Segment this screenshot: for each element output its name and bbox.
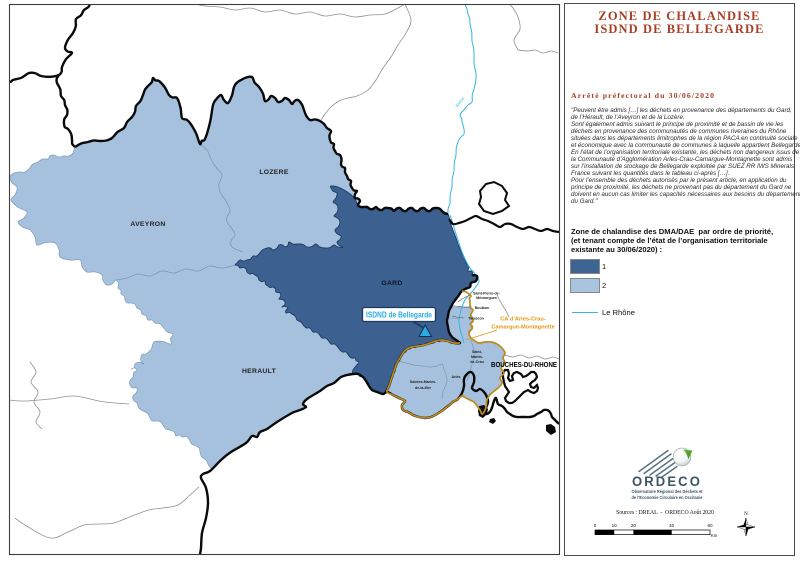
svg-text:Boulbon: Boulbon [475, 306, 490, 310]
svg-text:CA d’Arles-Crau-: CA d’Arles-Crau- [500, 317, 546, 323]
svg-text:Saintes-Maries-: Saintes-Maries- [410, 380, 437, 384]
svg-text:AVEYRON: AVEYRON [130, 221, 165, 228]
svg-text:N: N [744, 511, 748, 517]
svg-text:Km: Km [711, 533, 718, 538]
svg-text:de-Crau: de-Crau [470, 360, 484, 364]
svg-text:HERAULT: HERAULT [242, 368, 277, 375]
svg-text:GARD: GARD [381, 280, 402, 287]
svg-text:de l’Economie Circulaire en Oc: de l’Economie Circulaire en Occitanie [632, 495, 704, 500]
svg-text:Saint-: Saint- [472, 350, 483, 354]
svg-text:Martin-: Martin- [471, 355, 484, 359]
svg-text:BOUCHES-DU-RHONE: BOUCHES-DU-RHONE [491, 360, 557, 369]
svg-text:Camargue-Montagnette: Camargue-Montagnette [491, 325, 555, 331]
svg-text:60: 60 [707, 523, 713, 528]
svg-text:10: 10 [612, 523, 618, 528]
svg-text:ISDND de Bellegarde: ISDND de Bellegarde [366, 309, 432, 319]
svg-text:20: 20 [631, 523, 637, 528]
svg-text:Saint-Pierre-de-: Saint-Pierre-de- [473, 292, 501, 296]
svg-text:Observatoire Régional des Déch: Observatoire Régional des Déchets et [632, 489, 704, 494]
svg-text:Mézoargues: Mézoargues [476, 296, 497, 300]
svg-text:LOZERE: LOZERE [259, 169, 289, 176]
svg-text:40: 40 [669, 523, 675, 528]
svg-text:0: 0 [594, 523, 597, 528]
svg-text:Tarascon: Tarascon [468, 316, 484, 320]
svg-text:de-la-Mer: de-la-Mer [415, 386, 432, 390]
svg-text:ORDECO: ORDECO [632, 474, 702, 489]
svg-text:Arles: Arles [452, 375, 461, 379]
